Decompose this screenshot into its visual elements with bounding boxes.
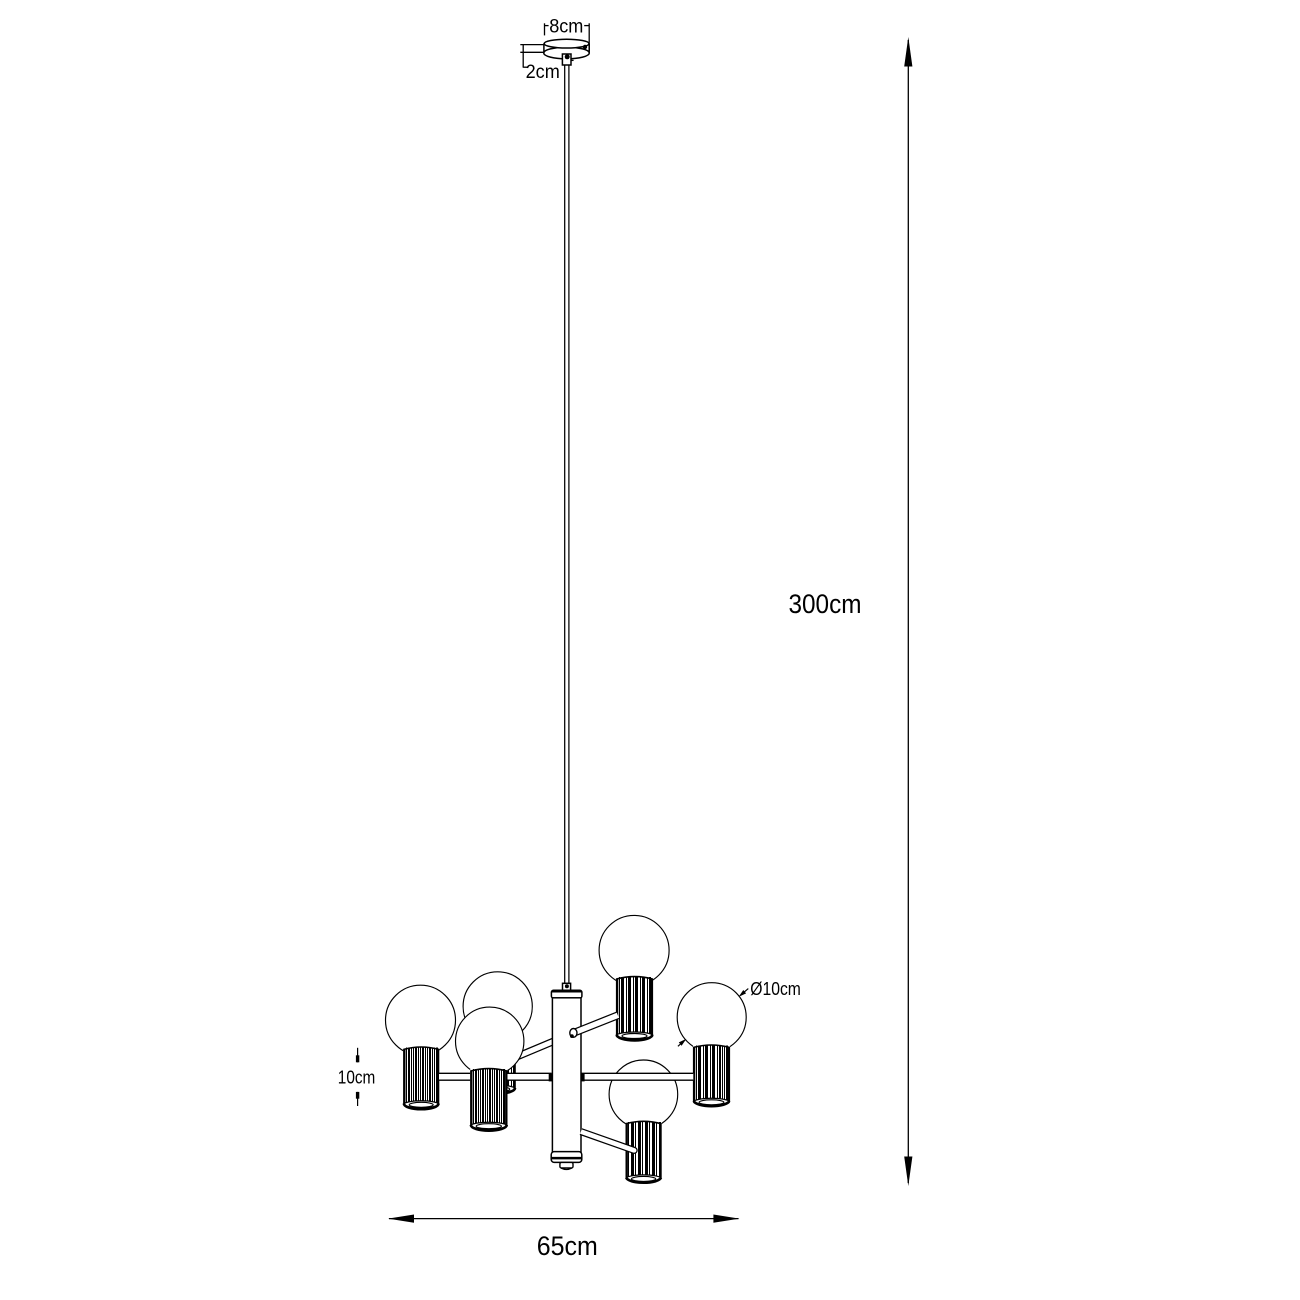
svg-text:2cm: 2cm (526, 61, 560, 83)
svg-text:10cm: 10cm (338, 1067, 376, 1087)
svg-text:Ø10cm: Ø10cm (750, 979, 801, 999)
svg-text:300cm: 300cm (789, 589, 862, 619)
svg-text:65cm: 65cm (537, 1231, 598, 1261)
svg-text:8cm: 8cm (549, 16, 583, 38)
